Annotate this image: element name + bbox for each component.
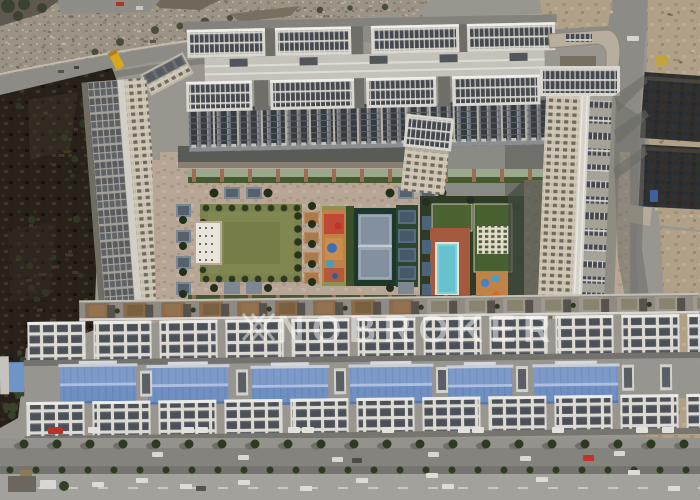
svg-text:NOBROKER: NOBROKER	[277, 309, 558, 351]
